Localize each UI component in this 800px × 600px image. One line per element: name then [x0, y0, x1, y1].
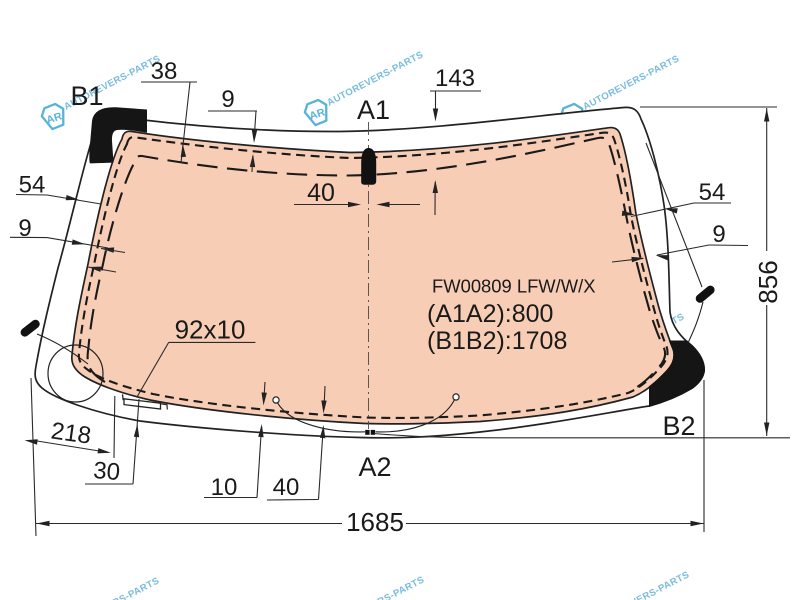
svg-text:A2: A2 — [358, 452, 391, 482]
svg-text:9: 9 — [221, 86, 234, 113]
svg-text:30: 30 — [92, 457, 121, 486]
svg-text:9: 9 — [712, 221, 725, 248]
svg-text:1685: 1685 — [346, 507, 404, 537]
svg-text:218: 218 — [49, 417, 92, 449]
svg-text:B1: B1 — [70, 81, 103, 111]
svg-text:(A1A2):800: (A1A2):800 — [427, 300, 553, 328]
svg-text:54: 54 — [699, 179, 726, 206]
svg-text:B2: B2 — [662, 411, 695, 441]
svg-text:40: 40 — [307, 179, 335, 207]
svg-text:40: 40 — [273, 474, 300, 501]
svg-text:(B1B2):1708: (B1B2):1708 — [427, 327, 567, 355]
svg-text:856: 856 — [753, 260, 783, 303]
svg-text:A1: A1 — [357, 95, 390, 125]
svg-text:38: 38 — [151, 58, 178, 85]
svg-text:FW00809 LFW/W/X: FW00809 LFW/W/X — [432, 276, 596, 297]
svg-text:92x10: 92x10 — [175, 315, 246, 345]
svg-text:143: 143 — [435, 65, 475, 92]
